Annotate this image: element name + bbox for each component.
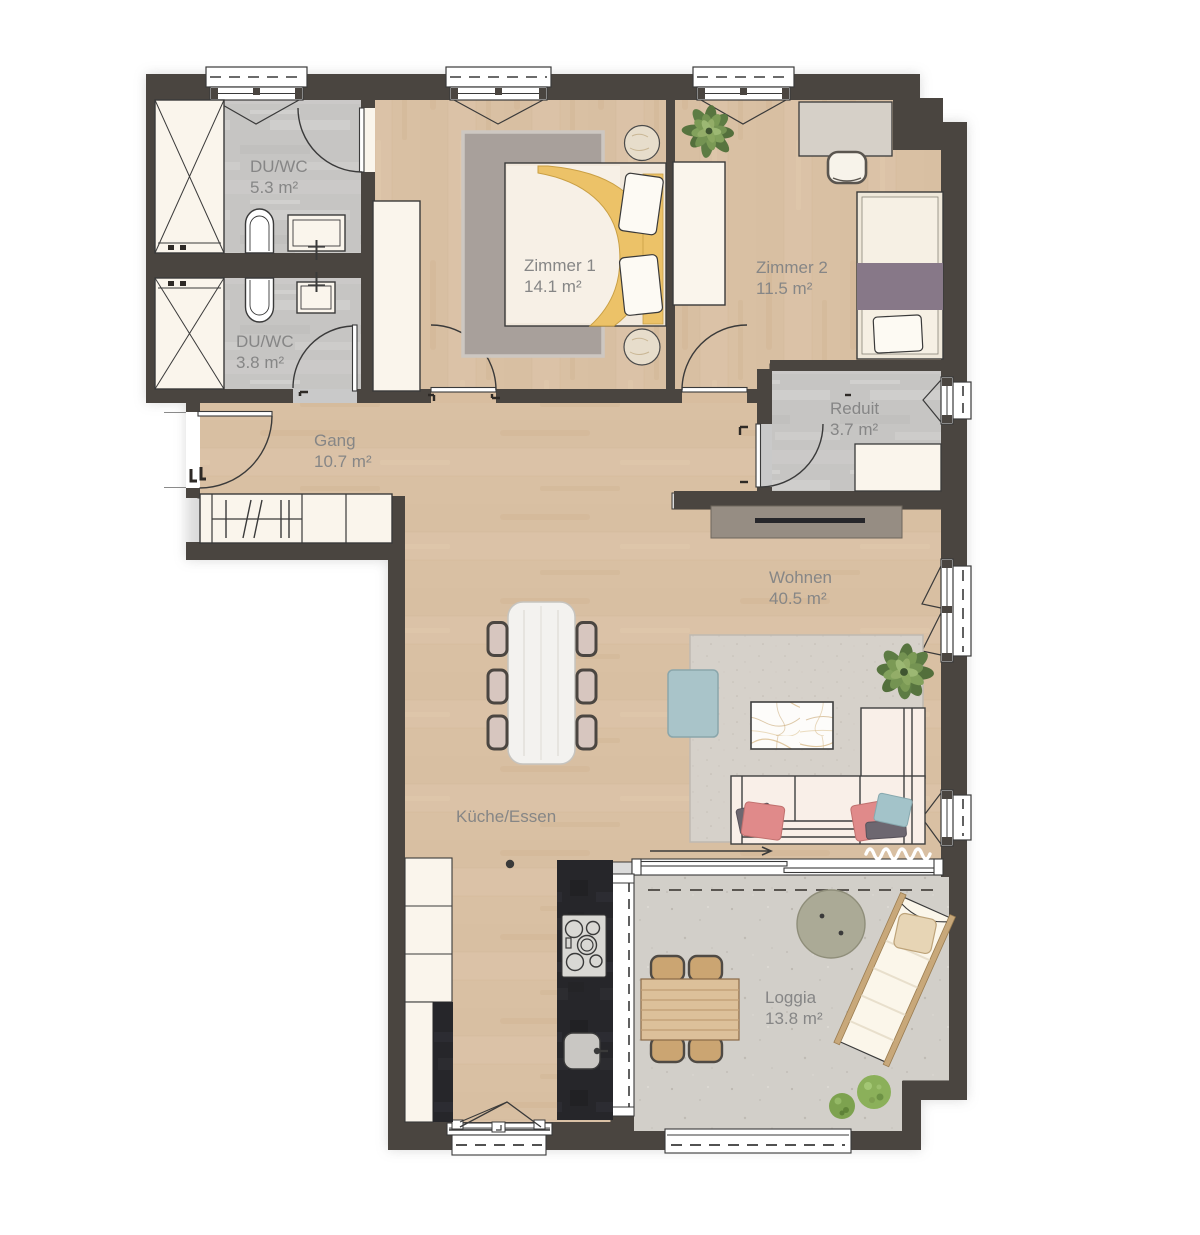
svg-text:13.8 m²: 13.8 m² [765,1009,823,1028]
svg-text:14.1 m²: 14.1 m² [524,277,582,296]
svg-text:Zimmer 2: Zimmer 2 [756,258,828,277]
svg-text:10.7 m²: 10.7 m² [314,452,372,471]
svg-text:DU/WC: DU/WC [236,332,294,351]
svg-text:Küche/Essen: Küche/Essen [456,807,556,826]
svg-text:Gang: Gang [314,431,356,450]
svg-text:Wohnen: Wohnen [769,568,832,587]
svg-text:40.5 m²: 40.5 m² [769,589,827,608]
svg-text:Reduit: Reduit [830,399,879,418]
svg-text:5.3 m²: 5.3 m² [250,178,299,197]
svg-text:DU/WC: DU/WC [250,157,308,176]
svg-text:Zimmer 1: Zimmer 1 [524,256,596,275]
svg-text:Loggia: Loggia [765,988,817,1007]
svg-text:11.5 m²: 11.5 m² [756,279,813,298]
svg-text:3.7 m²: 3.7 m² [830,420,879,439]
svg-text:3.8 m²: 3.8 m² [236,353,285,372]
